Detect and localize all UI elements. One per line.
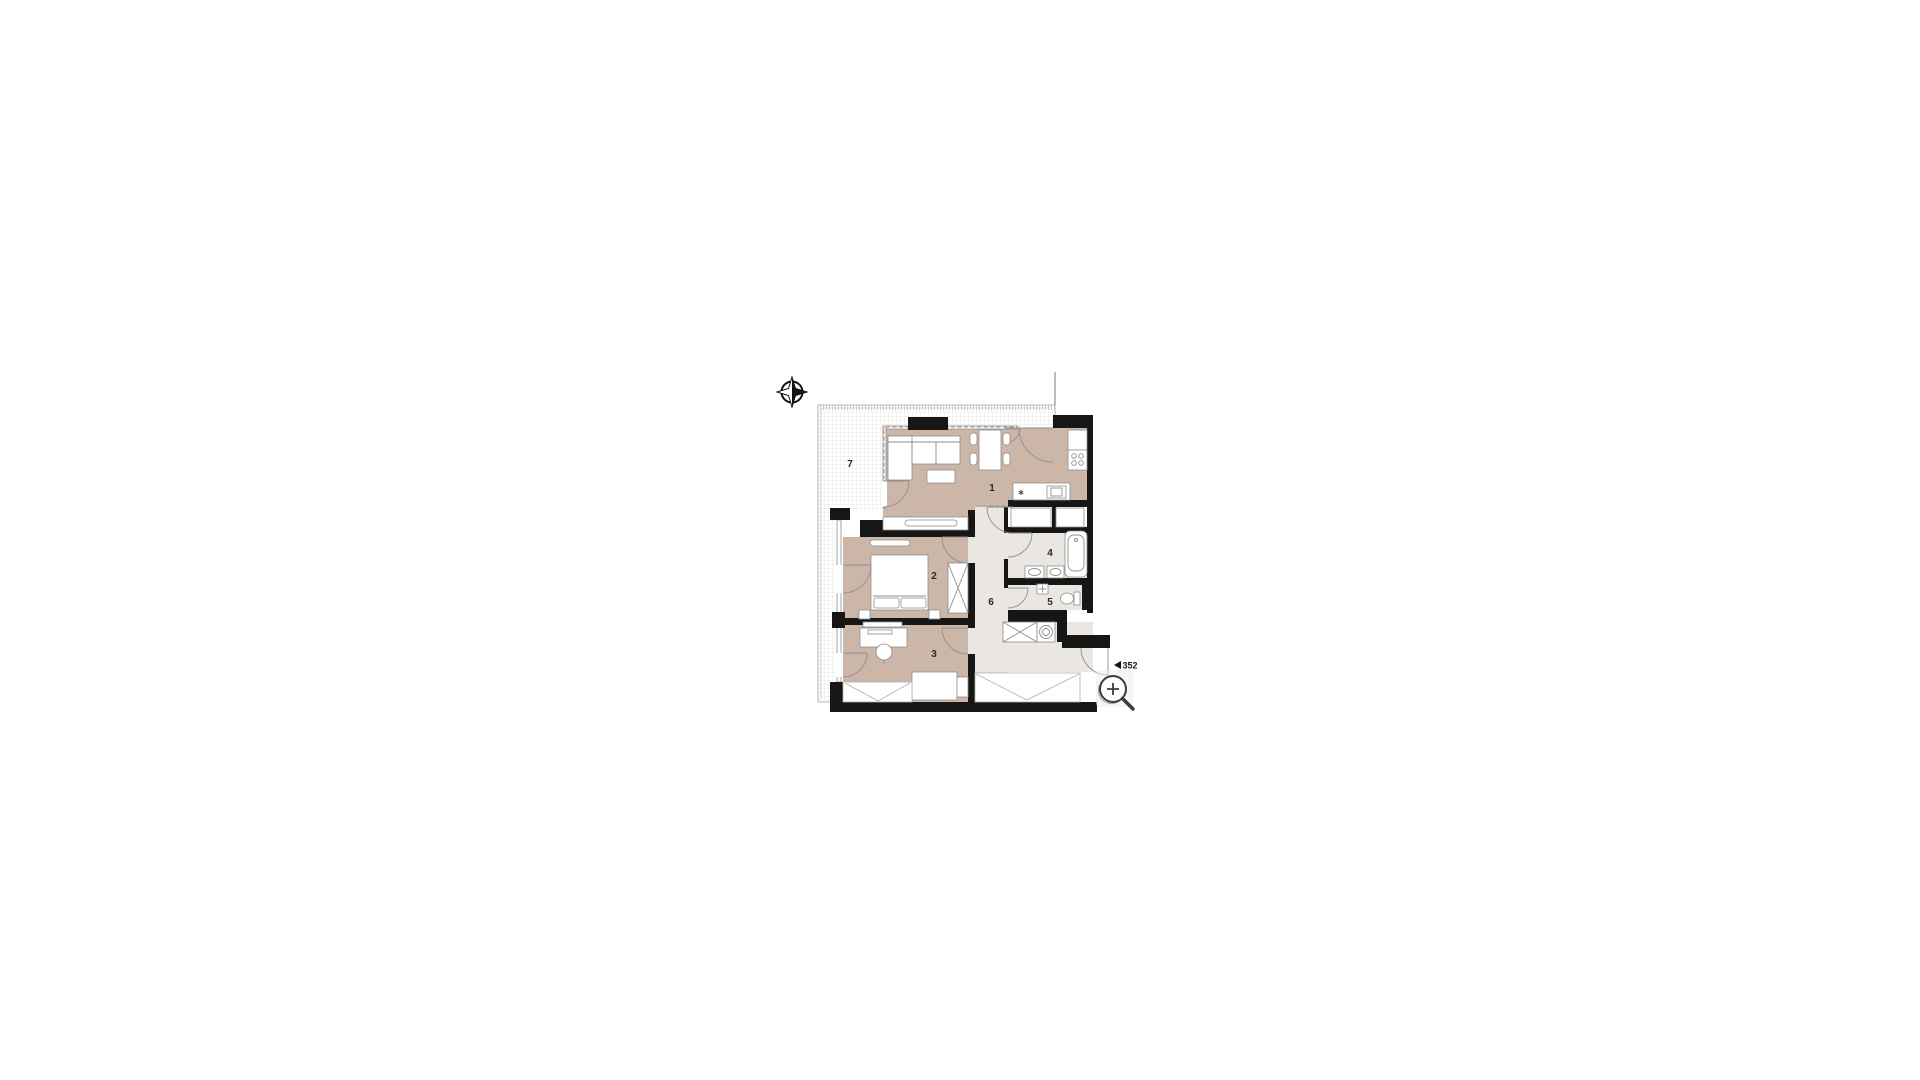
nightstand <box>929 610 940 619</box>
toilet-tank <box>1074 592 1080 605</box>
dining-chair <box>970 453 977 465</box>
shelf <box>863 622 902 627</box>
left-triangle-icon <box>1114 661 1121 669</box>
washbasin <box>1025 566 1044 578</box>
hallway-fixtures <box>1003 622 1055 642</box>
room-label-7: 7 <box>847 459 853 470</box>
room-label-4: 4 <box>1047 548 1053 559</box>
toilet <box>1061 593 1074 604</box>
dining-table <box>979 430 1001 470</box>
room-label-2: 2 <box>931 571 937 582</box>
unit-number: 352 <box>1123 661 1138 671</box>
coffee-table <box>927 470 955 483</box>
room-label-1: 1 <box>989 483 995 494</box>
radiator <box>905 520 957 526</box>
floor-plan-canvas: ✱ <box>755 360 1165 725</box>
monitor <box>868 630 892 634</box>
cooktop <box>1068 450 1087 470</box>
pillow <box>901 598 926 608</box>
desk-chair <box>876 644 892 660</box>
dining-chair <box>1003 453 1010 465</box>
closet <box>1056 508 1084 527</box>
room-label-6: 6 <box>988 597 994 608</box>
room-label-5: 5 <box>1047 597 1053 608</box>
unit-marker: 352 <box>1114 661 1138 671</box>
dining-chair <box>970 433 977 445</box>
closet <box>1011 508 1051 527</box>
nightstand <box>859 610 870 619</box>
hob-symbol: ✱ <box>1018 489 1024 497</box>
pillow <box>957 677 968 697</box>
single-bed <box>912 672 957 700</box>
radiator <box>870 540 910 546</box>
room-label-3: 3 <box>931 649 937 660</box>
fridge <box>1068 430 1087 450</box>
zoom-in-icon[interactable] <box>1096 670 1133 709</box>
dining-chair <box>1003 433 1010 445</box>
north-arrow-icon <box>777 377 807 407</box>
pillow <box>874 598 899 608</box>
